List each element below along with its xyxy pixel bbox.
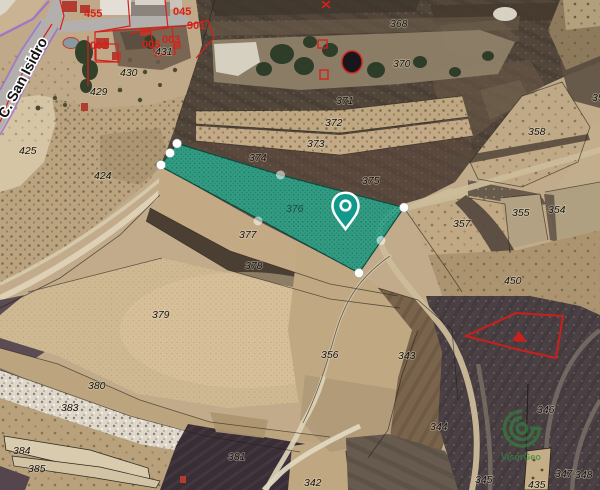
svg-text:355: 355 [512,207,530,219]
svg-text:379: 379 [152,309,170,321]
svg-text:373: 373 [307,138,325,150]
svg-text:354: 354 [548,204,566,216]
svg-text:346: 346 [537,404,555,416]
svg-text:357: 357 [453,218,472,230]
svg-text:005: 005 [142,39,160,51]
svg-text:385: 385 [28,463,46,475]
svg-text:376: 376 [286,203,304,215]
svg-text:377: 377 [239,229,258,241]
svg-text:381: 381 [228,451,246,463]
svg-text:429: 429 [90,86,108,98]
svg-text:374: 374 [249,152,267,164]
svg-text:342: 342 [304,477,322,489]
svg-text:003: 003 [162,34,180,46]
svg-text:372: 372 [325,117,343,129]
svg-text:384: 384 [13,445,31,457]
svg-text:356: 356 [321,349,339,361]
svg-text:375: 375 [362,175,380,187]
svg-text:425: 425 [19,145,37,157]
svg-text:455: 455 [84,8,102,20]
svg-text:371: 371 [336,95,354,107]
svg-text:358: 358 [528,126,546,138]
svg-text:348: 348 [575,469,593,481]
svg-text:VisorGeo: VisorGeo [501,452,541,462]
svg-text:344: 344 [430,421,448,433]
svg-text:347: 347 [555,468,574,480]
svg-text:430: 430 [120,67,138,79]
svg-text:378: 378 [245,260,263,272]
svg-text:343: 343 [398,350,416,362]
svg-text:450: 450 [504,275,522,287]
svg-text:424: 424 [94,170,112,182]
svg-text:370: 370 [393,58,411,70]
svg-text:380: 380 [88,380,106,392]
svg-text:435: 435 [528,479,546,490]
svg-text:383: 383 [61,402,79,414]
svg-text:002: 002 [90,40,108,52]
svg-text:901: 901 [187,20,205,32]
svg-text:345: 345 [475,474,493,486]
svg-text:045: 045 [173,6,191,18]
svg-text:368: 368 [390,18,408,30]
svg-text:35: 35 [592,92,600,104]
